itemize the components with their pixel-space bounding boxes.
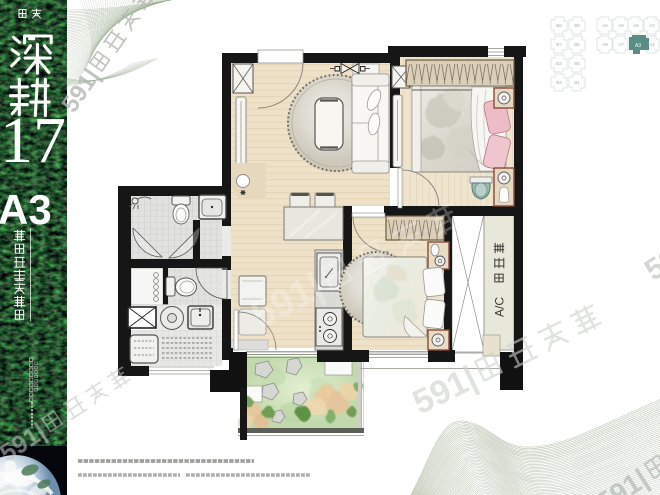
svg-text:B7: B7 [556,42,562,47]
svg-text:A7: A7 [618,42,624,47]
svg-text:A8: A8 [602,42,608,47]
svg-text:A2: A2 [649,42,655,47]
svg-text:A5: A5 [633,23,639,28]
svg-text:B1: B1 [574,80,580,85]
svg-text:A4: A4 [602,23,608,28]
svg-text:B6: B6 [574,42,580,47]
svg-text:B3: B3 [556,61,562,66]
svg-text:A6: A6 [618,23,624,28]
svg-text:A2: A2 [649,23,655,28]
svg-text:B2: B2 [556,80,562,85]
svg-text:B5: B5 [574,61,580,66]
svg-text:A/C: A/C [493,297,507,317]
svg-text:A3: A3 [0,186,52,233]
svg-text:A3: A3 [635,43,641,49]
svg-text:17: 17 [0,104,66,177]
svg-text:B9: B9 [574,23,580,28]
svg-text:B8: B8 [556,23,562,28]
